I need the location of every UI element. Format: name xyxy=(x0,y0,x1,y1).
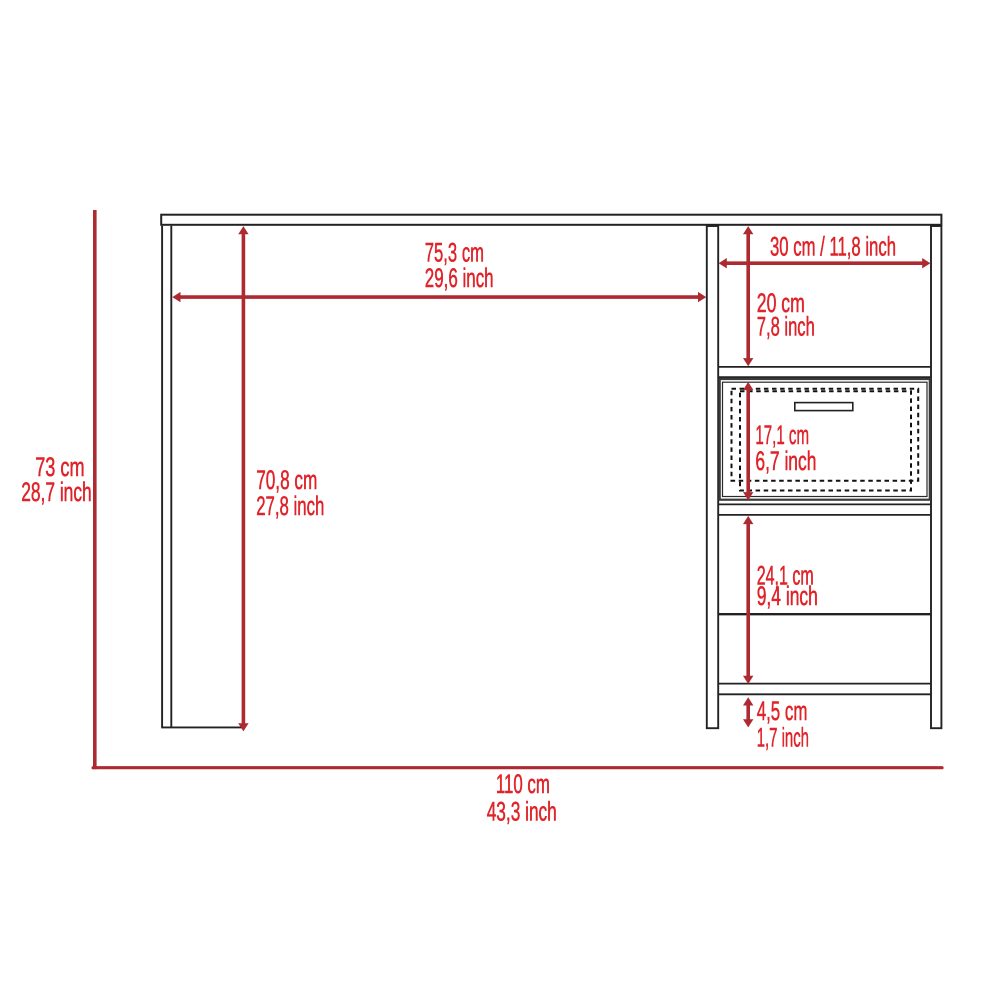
svg-text:6,7 inch: 6,7 inch xyxy=(755,446,816,476)
svg-text:1,7 inch: 1,7 inch xyxy=(757,722,809,752)
svg-text:30 cm / 11,8 inch: 30 cm / 11,8 inch xyxy=(770,232,896,262)
svg-text:29,6 inch: 29,6 inch xyxy=(425,263,494,293)
svg-text:27,8 inch: 27,8 inch xyxy=(256,491,324,521)
svg-text:110 cm: 110 cm xyxy=(496,769,550,799)
svg-text:7,8 inch: 7,8 inch xyxy=(757,312,815,342)
svg-text:28,7 inch: 28,7 inch xyxy=(21,477,92,507)
svg-text:9,4 inch: 9,4 inch xyxy=(757,581,818,611)
svg-text:43,3 inch: 43,3 inch xyxy=(487,797,557,827)
